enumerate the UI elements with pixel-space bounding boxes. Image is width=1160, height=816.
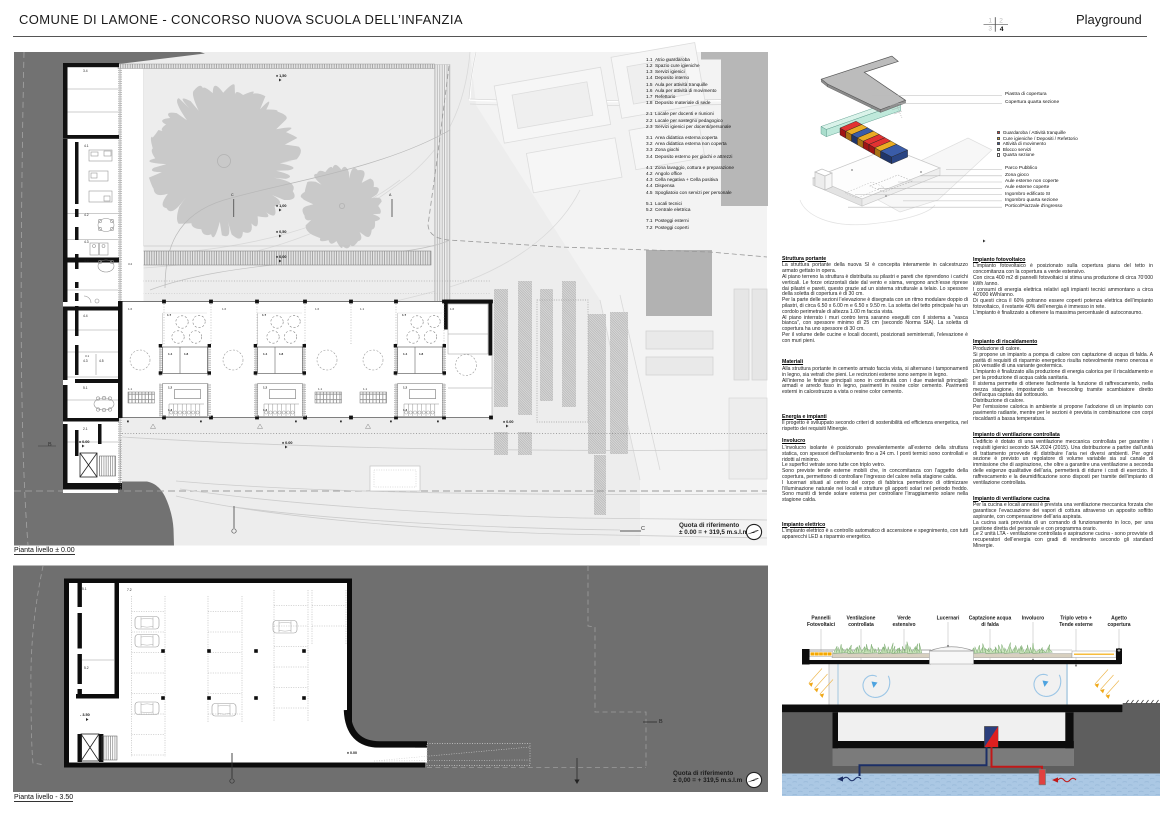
svg-text:1.7: 1.7: [167, 313, 172, 317]
svg-text:1.1: 1.1: [318, 387, 323, 391]
svg-text:Lucernari: Lucernari: [937, 616, 960, 622]
svg-text:1.2: 1.2: [168, 386, 173, 390]
svg-text:± 0.00: ± 0.00: [347, 751, 357, 755]
svg-text:1.7: 1.7: [262, 313, 267, 317]
svg-text:4.1: 4.1: [84, 144, 89, 148]
svg-text:copertura: copertura: [1107, 622, 1130, 628]
svg-text:Triplo vetro +: Triplo vetro +: [1060, 616, 1092, 622]
svg-text:4.5: 4.5: [99, 359, 104, 363]
svg-text:3.1: 3.1: [85, 354, 90, 358]
svg-text:1.2: 1.2: [263, 386, 268, 390]
svg-text:Agetto: Agetto: [1111, 616, 1127, 622]
svg-text:Pannelli: Pannelli: [811, 616, 831, 622]
svg-text:3.2: 3.2: [128, 262, 133, 266]
svg-text:3.4: 3.4: [83, 69, 88, 73]
svg-text:1.4: 1.4: [168, 352, 173, 356]
svg-text:Involucro: Involucro: [1022, 616, 1045, 622]
svg-text:Fotovoltaici: Fotovoltaici: [807, 622, 836, 628]
svg-text:± 1,00: ± 1,00: [276, 204, 287, 208]
svg-text:1.2: 1.2: [403, 386, 408, 390]
svg-text:± 1,50: ± 1,50: [276, 74, 287, 78]
svg-text:C: C: [231, 193, 234, 197]
svg-text:Ventilazione: Ventilazione: [847, 616, 876, 622]
svg-text:1.6: 1.6: [450, 307, 455, 311]
svg-text:1.1: 1.1: [360, 307, 365, 311]
svg-text:1.4: 1.4: [263, 352, 268, 356]
svg-text:1.1: 1.1: [128, 387, 133, 391]
svg-text:Verde: Verde: [897, 616, 911, 622]
svg-text:1.6: 1.6: [222, 307, 227, 311]
svg-text:Tende esterne: Tende esterne: [1059, 622, 1093, 628]
svg-text:1.8: 1.8: [419, 352, 424, 356]
svg-text:4.4: 4.4: [83, 314, 88, 318]
svg-text:± 0.00: ± 0.00: [503, 420, 514, 424]
svg-text:± 0.00: ± 0.00: [282, 441, 293, 445]
svg-text:4.4: 4.4: [84, 259, 89, 263]
svg-text:1.1: 1.1: [363, 387, 368, 391]
svg-text:1.3: 1.3: [168, 408, 173, 412]
svg-text:4.3: 4.3: [84, 240, 89, 244]
svg-text:5.1: 5.1: [82, 587, 87, 591]
svg-text:5.2: 5.2: [84, 666, 89, 670]
svg-text:di falda: di falda: [981, 622, 999, 628]
svg-text:4.3: 4.3: [83, 359, 88, 363]
svg-text:7.2: 7.2: [127, 588, 132, 592]
svg-text:1.8: 1.8: [279, 352, 284, 356]
svg-text:- 3.50: - 3.50: [80, 713, 90, 717]
svg-text:1.6: 1.6: [315, 307, 320, 311]
svg-text:1.8: 1.8: [184, 352, 189, 356]
svg-text:estensivo: estensivo: [892, 622, 915, 628]
svg-text:± 0.00: ± 0.00: [79, 440, 90, 444]
svg-text:2.1: 2.1: [83, 427, 88, 431]
svg-text:1.3: 1.3: [403, 408, 408, 412]
svg-text:1.7: 1.7: [402, 313, 407, 317]
svg-text:1.4: 1.4: [403, 352, 408, 356]
svg-text:5.1: 5.1: [83, 386, 88, 390]
svg-text:4.2: 4.2: [84, 213, 89, 217]
svg-text:Captazione acqua: Captazione acqua: [969, 616, 1012, 622]
svg-text:± 0,00: ± 0,00: [276, 255, 287, 259]
svg-text:1.6: 1.6: [128, 307, 133, 311]
svg-text:controllata: controllata: [848, 622, 874, 628]
svg-text:± 0,50: ± 0,50: [276, 230, 287, 234]
svg-text:1.3: 1.3: [263, 408, 268, 412]
